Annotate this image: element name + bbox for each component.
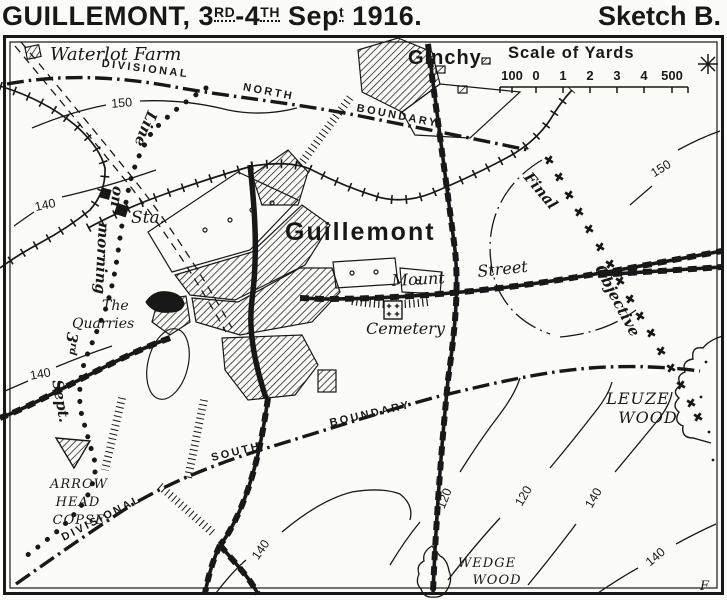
leuze-wood-edge: [675, 336, 723, 443]
leuze-wood-label-1: LEUZE: [605, 389, 670, 408]
mount-street-block-1: [333, 258, 398, 288]
station-label: Sta.: [131, 208, 165, 228]
guillemont-north-block: [252, 150, 308, 205]
quarries-pit: [146, 292, 184, 313]
contour-label-150-e: 150: [648, 157, 673, 180]
north-star-icon: [698, 54, 718, 74]
signature: F: [699, 579, 710, 594]
guillemont-south-block: [222, 335, 318, 400]
contour-label-140-w-lower: 140: [29, 365, 52, 382]
scale-tick-0: 0: [532, 68, 539, 83]
wedge-wood-label-1: WEDGE: [458, 556, 516, 571]
contour-140-se-b: [598, 568, 638, 593]
south-boundary-line: [16, 367, 700, 584]
scale-ruler: [500, 87, 688, 93]
south-boundary-label-3: BOUNDARY: [328, 399, 412, 429]
mount-street-label-1: Mount: [390, 268, 446, 290]
mount-street-label-2: Street: [476, 257, 529, 281]
leuze-wood-label-2: WOOD: [618, 408, 678, 427]
scale-tick-500: 500: [661, 68, 683, 83]
contour-label-140-se-b: 140: [643, 545, 668, 569]
scale-tick-1: 1: [559, 68, 566, 83]
arrow-head-copse-label-2: HEAD: [55, 495, 101, 510]
waterlot-farm-building: [25, 45, 41, 60]
quarries-label-1: The: [102, 298, 129, 314]
contour-120-a: [390, 522, 420, 565]
gully-2: [188, 400, 204, 478]
arrow-head-copse-symbol: [56, 438, 90, 468]
scale-title: Scale of Yards: [508, 44, 635, 62]
scale-tick-100: 100: [501, 68, 523, 83]
morning-line-label-4: 3rd: [60, 331, 81, 356]
quarries-label-2: Quarries: [72, 316, 134, 332]
contour-150-nw: [32, 105, 106, 128]
arrow-head-copse-label-1: ARROW: [49, 477, 109, 492]
contour-label-140-se-a: 140: [582, 485, 605, 510]
ginchy-label: Ginchy: [408, 47, 482, 69]
contour-label-140-s-center: 140: [249, 537, 272, 562]
morning-line-label-2: on: [107, 185, 127, 208]
scale-bar: Scale of Yards 100 0 1 2 3 4 500: [500, 44, 718, 93]
contour-140-se-a: [528, 524, 576, 585]
map-canvas: 150 150 140 140 140 120 120 140 140: [0, 0, 727, 600]
final-objective-line: [543, 154, 705, 424]
gully-1: [105, 398, 122, 470]
cemetery-symbol: [352, 301, 428, 319]
map-labels: Waterlot Farm Ginchy Guillemont Mount St…: [48, 44, 710, 594]
cemetery-plot: [384, 301, 402, 319]
guillemont-label: Guillemont: [285, 218, 436, 246]
contour-label-150-nw: 150: [111, 95, 133, 111]
contour-150-e: [630, 186, 652, 205]
contour-140-w-upper: [14, 212, 34, 226]
morning-line-label-1: Line: [130, 108, 161, 150]
woods: [56, 336, 723, 597]
scale-tick-2: 2: [586, 68, 593, 83]
cemetery-label: Cemetery: [366, 319, 446, 338]
contour-label-140-w-upper: 140: [34, 196, 57, 214]
contour-140-w-lower: [5, 381, 28, 391]
scale-tick-4: 4: [640, 68, 648, 83]
contour-label-120-b: 120: [512, 483, 535, 508]
scale-tick-3: 3: [613, 68, 620, 83]
wedge-wood-label-2: WOOD: [472, 573, 521, 588]
guillemont-se-building: [318, 370, 336, 392]
gully-3: [160, 486, 214, 534]
morning-line-label-3: morning: [91, 222, 113, 295]
